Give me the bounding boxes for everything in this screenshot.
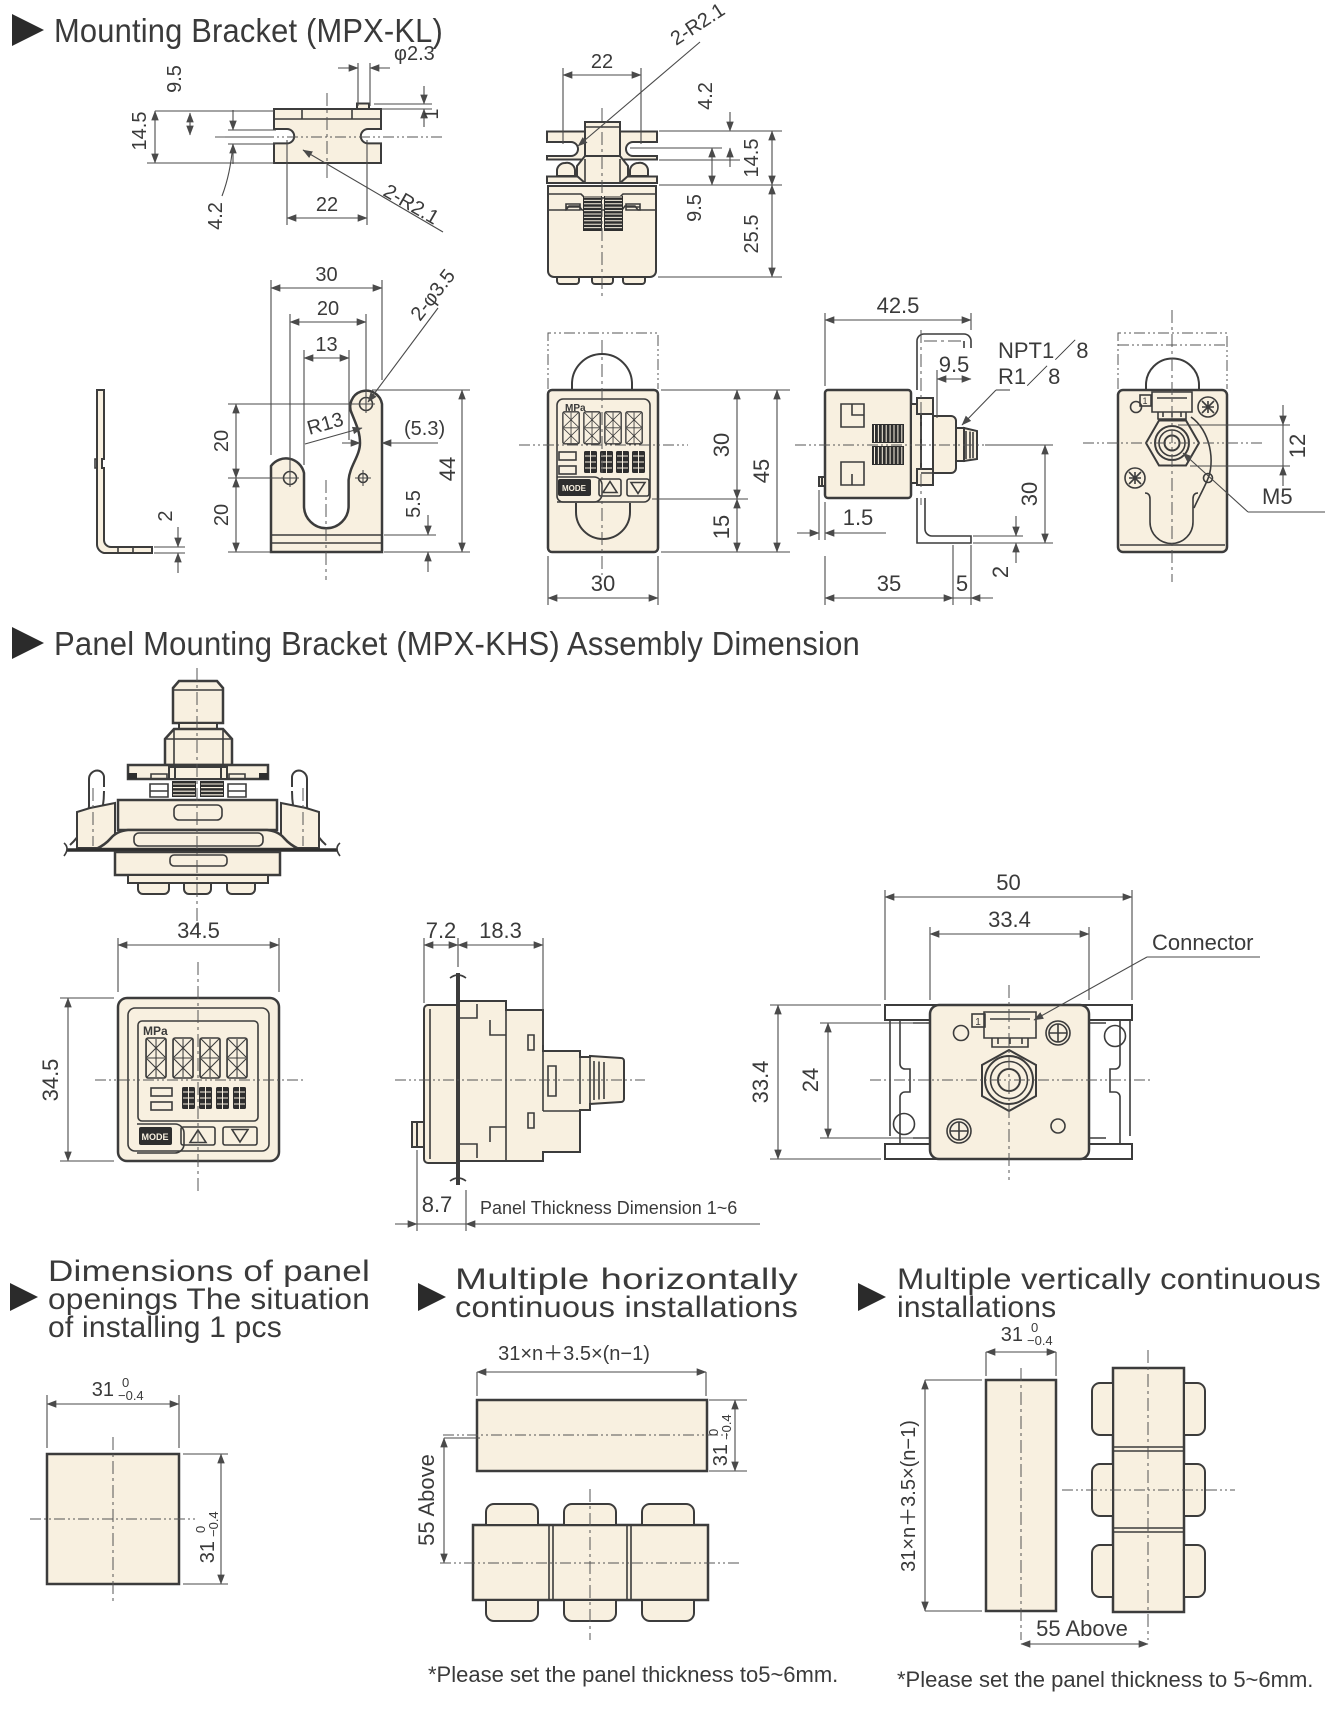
svg-text:31×n＋3.5×(n−1): 31×n＋3.5×(n−1) — [498, 1343, 650, 1365]
svg-text:MPa: MPa — [143, 1024, 168, 1038]
svg-text:20: 20 — [211, 430, 233, 452]
svg-text:42.5: 42.5 — [877, 293, 920, 318]
svg-text:MODE: MODE — [142, 1132, 169, 1142]
svg-text:NPT1／8: NPT1／8 — [998, 338, 1088, 363]
svg-text:30: 30 — [315, 264, 337, 286]
svg-text:31: 31 — [197, 1541, 219, 1563]
svg-text:−0.4: −0.4 — [118, 1388, 144, 1403]
svg-text:Panel Thickness Dimension 1~6: Panel Thickness Dimension 1~6 — [480, 1198, 737, 1218]
svg-text:22: 22 — [591, 51, 613, 73]
svg-text:4.2: 4.2 — [205, 202, 227, 230]
svg-text:30: 30 — [591, 571, 615, 596]
svg-text:18.3: 18.3 — [479, 918, 522, 943]
svg-text:31: 31 — [710, 1444, 732, 1466]
svg-text:9.5: 9.5 — [939, 352, 970, 377]
svg-text:35: 35 — [877, 571, 901, 596]
svg-text:55 Above: 55 Above — [414, 1454, 439, 1546]
svg-text:13: 13 — [315, 334, 337, 356]
svg-text:φ2.3: φ2.3 — [394, 43, 435, 65]
svg-text:31: 31 — [1001, 1324, 1023, 1346]
svg-text:20: 20 — [211, 504, 233, 526]
svg-text:12: 12 — [1285, 434, 1310, 458]
svg-text:55 Above: 55 Above — [1036, 1616, 1128, 1641]
svg-text:45: 45 — [749, 459, 774, 483]
svg-text:9.5: 9.5 — [164, 65, 186, 93]
svg-text:−0.4: −0.4 — [206, 1511, 221, 1537]
svg-text:14.5: 14.5 — [129, 112, 151, 151]
svg-text:34.5: 34.5 — [38, 1059, 63, 1102]
svg-text:(5.3): (5.3) — [404, 418, 445, 440]
svg-text:20: 20 — [317, 298, 339, 320]
svg-text:44: 44 — [435, 457, 460, 481]
svg-text:9.5: 9.5 — [684, 194, 706, 222]
svg-text:1: 1 — [421, 108, 443, 119]
svg-text:1.5: 1.5 — [843, 505, 874, 530]
svg-text:50: 50 — [996, 870, 1020, 895]
svg-text:25.5: 25.5 — [741, 215, 763, 254]
svg-text:22: 22 — [316, 194, 338, 216]
svg-text:1: 1 — [975, 1017, 981, 1028]
svg-text:−0.4: −0.4 — [719, 1414, 734, 1440]
svg-text:31: 31 — [92, 1379, 114, 1401]
svg-text:MODE: MODE — [562, 484, 587, 493]
svg-text:−0.4: −0.4 — [1027, 1333, 1053, 1348]
svg-text:7.2: 7.2 — [426, 918, 457, 943]
svg-text:1: 1 — [1142, 396, 1147, 406]
svg-text:2: 2 — [988, 566, 1013, 578]
svg-text:33.4: 33.4 — [748, 1061, 773, 1104]
svg-text:34.5: 34.5 — [177, 918, 220, 943]
svg-text:5: 5 — [956, 571, 968, 596]
svg-text:4.2: 4.2 — [695, 82, 717, 110]
svg-text:2: 2 — [155, 510, 177, 521]
svg-text:continuous installations: continuous installations — [455, 1291, 798, 1324]
svg-text:31×n＋3.5×(n−1): 31×n＋3.5×(n−1) — [898, 1420, 920, 1572]
svg-text:24: 24 — [798, 1068, 823, 1092]
svg-text:30: 30 — [1017, 482, 1042, 506]
svg-text:15: 15 — [709, 515, 734, 539]
svg-text:Mounting Bracket (MPX-KL): Mounting Bracket (MPX-KL) — [54, 12, 443, 49]
svg-text:14.5: 14.5 — [741, 139, 763, 178]
svg-text:30: 30 — [709, 433, 734, 457]
svg-text:*Please set the panel thicknes: *Please set the panel thickness to5~6mm. — [428, 1662, 838, 1687]
svg-text:*Please set the panel thicknes: *Please set the panel thickness to 5~6mm… — [897, 1667, 1313, 1692]
svg-text:Panel Mounting Bracket (MPX-KH: Panel Mounting Bracket (MPX-KHS) Assembl… — [54, 625, 860, 662]
svg-text:Connector: Connector — [1152, 930, 1254, 955]
svg-text:5.5: 5.5 — [403, 490, 425, 518]
svg-text:M5: M5 — [1262, 484, 1293, 509]
svg-text:33.4: 33.4 — [988, 907, 1031, 932]
svg-text:R1／8: R1／8 — [998, 364, 1060, 389]
svg-text:of installing 1 pcs: of installing 1 pcs — [48, 1311, 282, 1344]
svg-text:8.7: 8.7 — [422, 1192, 453, 1217]
